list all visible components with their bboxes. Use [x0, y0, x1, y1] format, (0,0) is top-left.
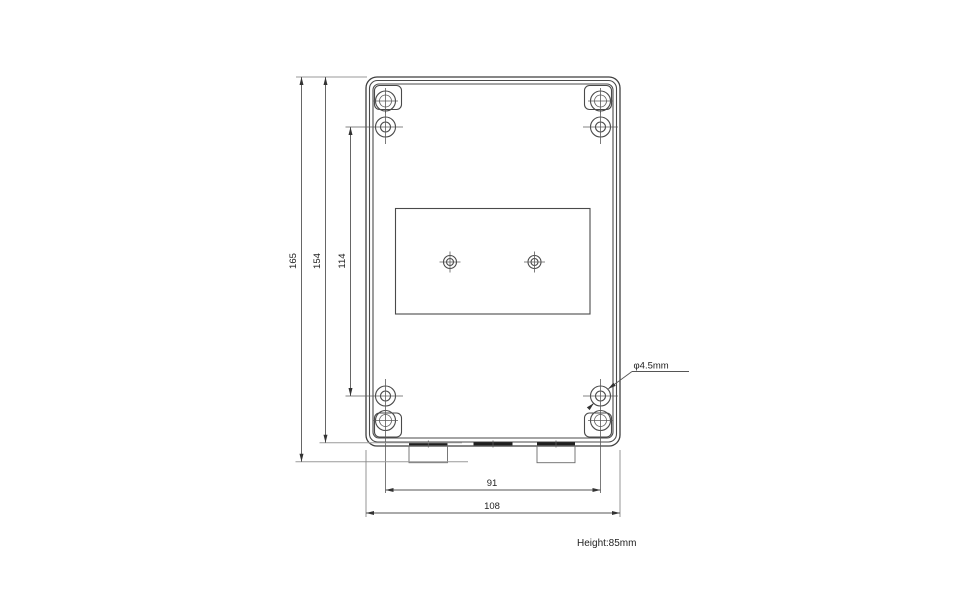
arrowhead-left: [386, 488, 394, 492]
arrowhead-down: [349, 388, 353, 396]
arrowhead-up: [324, 77, 328, 85]
dimension-label-hole-spacing: 91: [487, 478, 498, 489]
cutout-rect: [396, 209, 591, 315]
dimension-vertical-hole-spacing: 114: [337, 127, 353, 396]
dimension-label-overall-width: 108: [484, 501, 500, 512]
arrowhead-up: [300, 77, 304, 85]
keyhole-tab: [375, 413, 402, 437]
dimension-label-overall-height: 165: [288, 253, 299, 269]
dimension-label-vertical-hole-spacing: 114: [337, 253, 348, 268]
dimension-horizontal-hole-spacing: 91: [386, 478, 601, 492]
center-hole-left: [440, 252, 461, 273]
keyhole-slot-top-left: [373, 86, 402, 114]
enclosure-mounting-drawing: 165 154 114 91 108 φ4.5mm Height:: [0, 0, 976, 600]
case-mid-edge: [370, 81, 617, 443]
arrowhead-up: [349, 127, 353, 135]
keyhole-tab: [375, 86, 402, 110]
keyhole-slot-bottom-left: [373, 411, 402, 438]
dimension-label-body-height: 154: [312, 253, 323, 269]
arrowhead-down: [324, 435, 328, 443]
center-cutout: [396, 209, 591, 315]
foot-block-left: [409, 446, 448, 463]
mounting-hole-top-left: [346, 110, 404, 144]
arrowhead-right: [593, 488, 601, 492]
drawing-canvas: 165 154 114 91 108 φ4.5mm Height:: [0, 0, 976, 600]
hole-diameter-callout: φ4.5mm: [587, 361, 689, 411]
foot-block-right: [537, 446, 575, 463]
keyhole-slot-bottom-right: [585, 411, 614, 438]
arrowhead-right: [612, 511, 620, 515]
mounting-hole-bottom-right: [583, 379, 618, 493]
center-hole-right: [524, 252, 545, 273]
case-outer-edge: [366, 77, 620, 446]
enclosure-outline: [366, 77, 620, 446]
arrowhead-down: [300, 454, 304, 462]
hole-diameter-label: φ4.5mm: [634, 361, 669, 372]
height-note: Height:85mm: [577, 538, 636, 549]
case-inner-lip: [373, 84, 613, 438]
bottom-terminals: [409, 441, 575, 463]
keyhole-tab: [585, 86, 612, 110]
keyhole-slot-top-right: [585, 86, 614, 114]
keyhole-tab: [585, 413, 612, 437]
arrowhead-left: [366, 511, 374, 515]
